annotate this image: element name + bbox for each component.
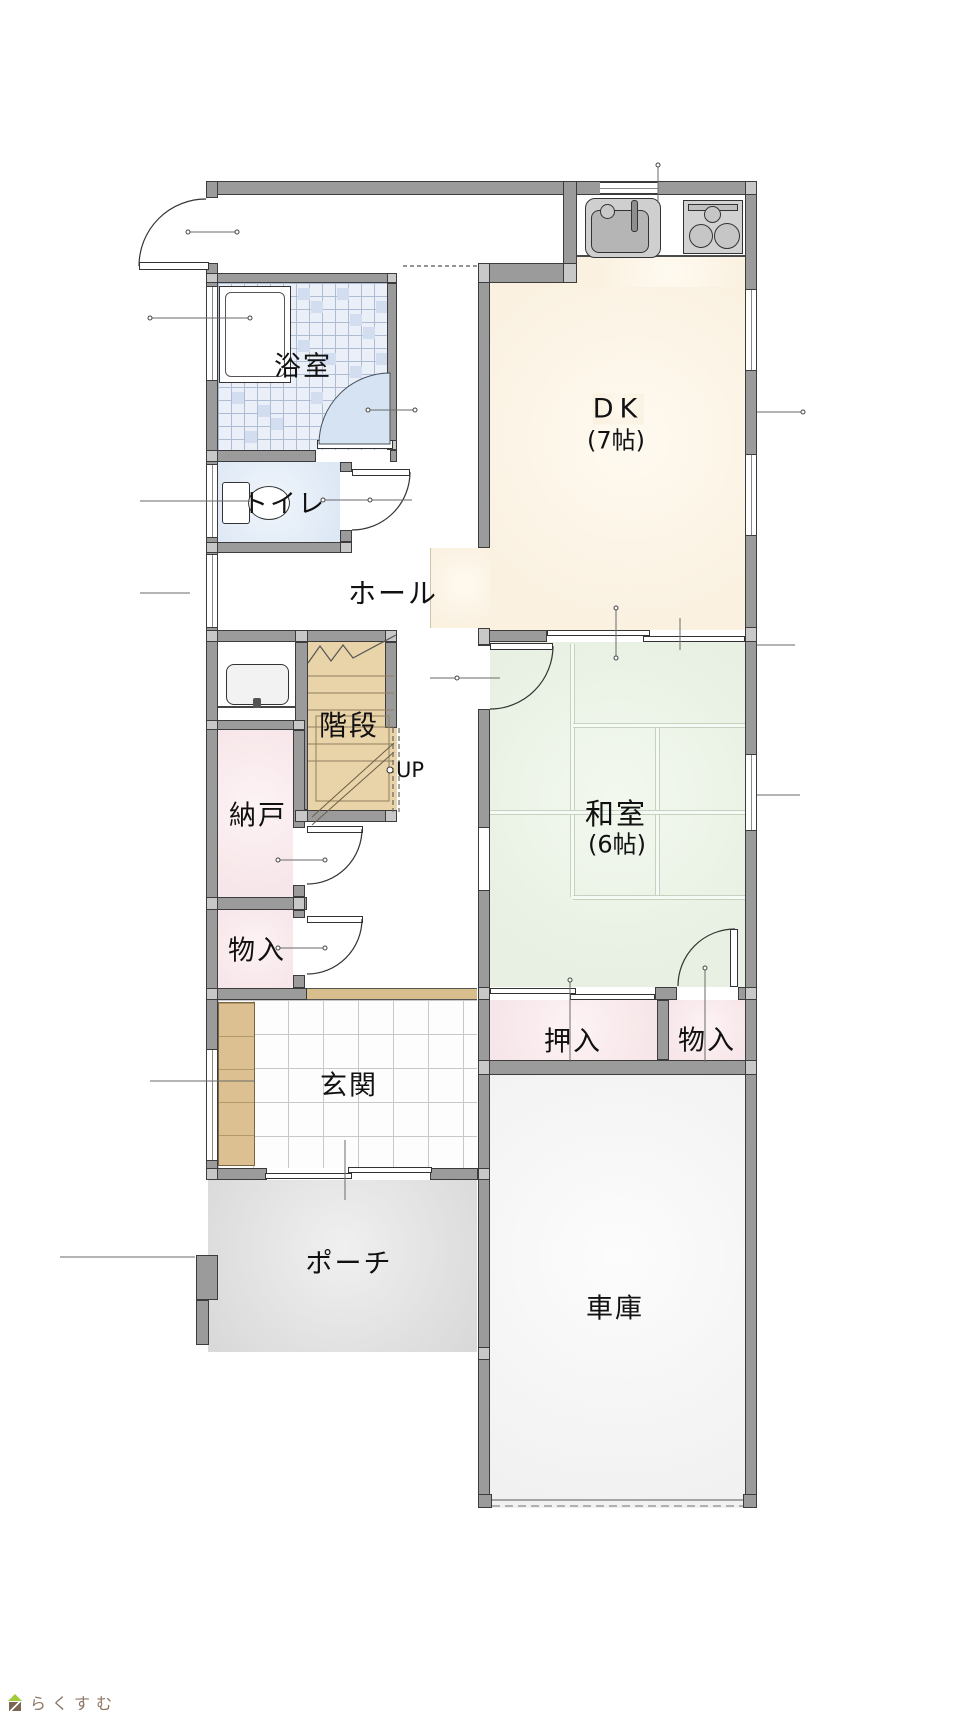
wall-stairs-bottom xyxy=(295,810,397,822)
tile-cell xyxy=(350,366,362,378)
wall-storage-right xyxy=(293,885,305,897)
wall-post xyxy=(745,181,757,195)
wall-bath-right xyxy=(387,283,397,450)
porch-label: ポーチ xyxy=(306,1242,393,1281)
entrance-label: 玄関 xyxy=(320,1064,378,1103)
tile-cell xyxy=(311,301,323,313)
wall-segment xyxy=(206,627,218,1050)
wall-segment xyxy=(745,535,757,755)
wall-post xyxy=(206,897,218,910)
closet-door-leaf xyxy=(307,916,363,923)
wall-post xyxy=(295,810,308,822)
wall-post xyxy=(295,630,308,642)
wall-post xyxy=(387,273,397,283)
wall-oshiire-divider xyxy=(657,1000,669,1060)
window xyxy=(206,465,218,537)
kitchen-sink-basin xyxy=(591,210,649,253)
entrance-sliding-door xyxy=(265,1173,352,1179)
wall-post xyxy=(206,542,218,553)
house-icon-body xyxy=(9,1702,21,1711)
tile-cell xyxy=(245,431,257,443)
stove-burner xyxy=(704,206,721,223)
wall-toilet-right xyxy=(340,530,352,542)
wall-toilet-bottom xyxy=(206,542,352,553)
tile-cell xyxy=(271,418,283,430)
wall-post xyxy=(478,1168,490,1180)
site-logo: らくすむ xyxy=(7,1690,118,1714)
wall-stairs-right xyxy=(385,642,397,728)
storage-door-swing xyxy=(307,829,362,884)
stairs-label: 階段 xyxy=(319,704,379,744)
storage-door-leaf xyxy=(307,826,363,833)
wall-post xyxy=(385,810,397,822)
wall-post xyxy=(745,627,757,642)
wall-post xyxy=(206,720,218,730)
wall-segment xyxy=(478,890,490,1508)
shoe-cabinet xyxy=(218,1002,255,1166)
stairs-up-label: UP xyxy=(396,758,424,782)
washitsu-size-label: (6帖) xyxy=(588,825,646,860)
tatami-joint xyxy=(573,895,745,900)
dk-size-label: (7帖) xyxy=(587,421,645,456)
bath-door-leaf xyxy=(317,440,393,449)
window xyxy=(745,755,757,830)
wall-bath-bottom xyxy=(206,450,316,462)
wall-segment xyxy=(478,709,490,828)
stove-burner xyxy=(714,223,740,249)
wall-opening xyxy=(478,828,490,890)
porch-post xyxy=(196,1300,209,1345)
wall-garage-top xyxy=(478,1060,757,1075)
entrance-step xyxy=(307,988,477,1000)
kitchen-faucet-lever xyxy=(631,200,638,232)
tatami-joint xyxy=(573,723,745,728)
stove-burner xyxy=(689,224,713,248)
garage-post xyxy=(478,1494,492,1508)
tile-cell xyxy=(298,288,310,300)
wall-toilet-right xyxy=(340,462,352,472)
window xyxy=(745,290,757,370)
wall-post xyxy=(293,720,305,730)
window xyxy=(745,455,757,535)
tile-cell xyxy=(350,314,362,326)
toilet-door-leaf xyxy=(352,469,410,476)
house-icon-roof xyxy=(8,1694,22,1701)
wall-post xyxy=(563,263,577,283)
wall-post xyxy=(745,987,757,1000)
wall-entrance-south xyxy=(430,1168,478,1180)
kitchen-faucet-base xyxy=(600,204,615,219)
closet-right-label: 物入 xyxy=(678,1019,736,1058)
wall-segment xyxy=(478,263,490,548)
storage-label: 納戸 xyxy=(229,794,287,833)
wall-closet-right xyxy=(293,975,305,988)
wall-storage-divider xyxy=(206,897,307,910)
fusuma-dk-washitsu xyxy=(547,630,650,636)
wall-post xyxy=(340,542,352,553)
wall-post xyxy=(478,1060,490,1075)
toilet-door-swing xyxy=(352,472,410,530)
kitchen-window xyxy=(600,182,658,194)
entry-door-swing xyxy=(139,199,206,266)
wall-post xyxy=(206,1168,218,1180)
wall-segment xyxy=(745,830,757,1508)
tile-cell xyxy=(337,405,349,417)
tile-cell xyxy=(311,392,323,404)
wall-basin-bottom xyxy=(206,720,295,730)
entry-door-leaf xyxy=(139,262,209,270)
house-icon xyxy=(7,1694,24,1711)
window xyxy=(206,555,218,627)
tile-cell xyxy=(363,392,375,404)
wall-segment xyxy=(206,181,218,198)
floor-plan: 浴室 トイレ ホール 階段 UP 納戸 物入 玄関 ポーチ DK (7帖) 和室… xyxy=(0,0,956,1715)
window xyxy=(206,287,218,380)
tile-cell xyxy=(363,327,375,339)
garage-post xyxy=(743,1494,757,1508)
wall-post xyxy=(385,630,397,642)
wall-segment xyxy=(745,370,757,455)
window xyxy=(206,1050,218,1160)
hall-label: ホール xyxy=(348,572,438,612)
dk-floor xyxy=(490,283,745,630)
tatami-joint xyxy=(570,644,575,897)
washbasin-faucet xyxy=(253,698,261,708)
wall-top xyxy=(206,181,757,195)
dk-doorway-floor xyxy=(430,548,490,628)
wall-post xyxy=(206,273,218,283)
garage-label: 車庫 xyxy=(586,1287,644,1326)
wall-post xyxy=(206,630,218,642)
wall-post xyxy=(478,628,490,645)
dk-floor-top xyxy=(577,257,745,287)
wall-post xyxy=(206,988,218,1000)
washitsu-door-leaf xyxy=(490,643,553,650)
wall-post xyxy=(745,1060,757,1075)
wall-post xyxy=(478,263,490,283)
wall-post xyxy=(293,897,305,910)
logo-text: らくすむ xyxy=(30,1690,118,1714)
fusuma-dk-washitsu xyxy=(643,636,745,642)
wall-post xyxy=(206,450,218,462)
tile-cell xyxy=(337,288,349,300)
oshiire-label: 押入 xyxy=(544,1020,602,1059)
wall-post xyxy=(478,987,490,1000)
wall-closet-bottom xyxy=(206,988,307,1000)
porch-post xyxy=(196,1255,218,1300)
wall-closet-right xyxy=(293,910,305,918)
toilet-label: トイレ xyxy=(242,484,326,521)
wall-bath-bottom xyxy=(390,450,397,462)
wall-segment xyxy=(745,181,757,290)
wall-post xyxy=(478,1347,490,1360)
fusuma-oshiire xyxy=(490,988,576,994)
tile-cell xyxy=(232,392,244,404)
washitsu-se-door-leaf xyxy=(730,929,738,987)
bathroom-label: 浴室 xyxy=(274,345,332,384)
wall-washitsu-south xyxy=(655,987,677,1000)
tile-cell xyxy=(258,405,270,417)
closet-left-label: 物入 xyxy=(228,929,286,968)
entrance-sliding-door xyxy=(348,1167,432,1173)
wall-bath-top xyxy=(206,273,397,283)
closet-door-swing xyxy=(307,919,362,974)
fusuma-oshiire xyxy=(570,994,655,1000)
